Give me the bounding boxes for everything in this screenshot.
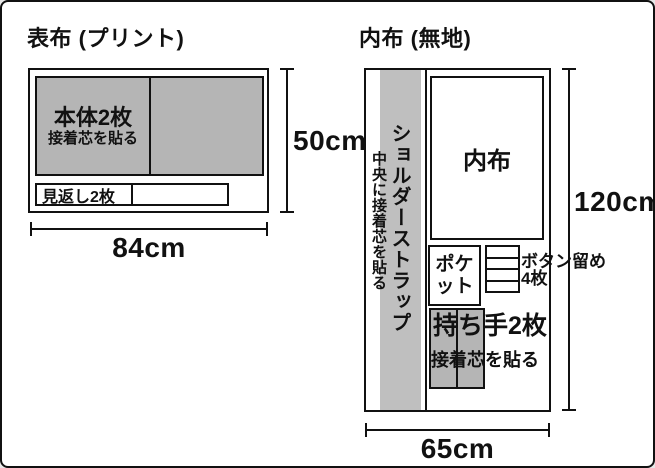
button-fastener-piece: [487, 247, 518, 257]
button-fastener-count: 4枚: [521, 270, 547, 287]
shoulder-strap-interfacing-note: 中央に接着芯を貼る: [371, 151, 386, 291]
main-body-label: 本体2枚: [54, 105, 132, 130]
strap-strip-divider-line: [425, 70, 427, 410]
lining-fabric-title: 内布 (無地): [359, 21, 471, 53]
pocket-piece: ポケット: [428, 245, 481, 306]
outer-fabric-height-label: 50cm: [293, 125, 367, 157]
lining-fabric-width-label: 65cm: [365, 433, 550, 465]
outer-fabric-title: 表布 (プリント): [27, 21, 184, 53]
button-fastener-stack: [485, 245, 520, 293]
pocket-label: ポケット: [434, 254, 475, 297]
lining-fabric-width-dim-line: [365, 429, 550, 431]
lining-piece: 内布: [430, 76, 544, 240]
handle-label: 持ち手2枚: [433, 314, 547, 339]
facing-label: 見返し2枚: [37, 183, 115, 207]
button-fastener-piece: [487, 268, 518, 280]
lining-fabric-height-label: 120cm: [574, 186, 655, 218]
lining-piece-label: 内布: [463, 141, 511, 176]
handle-interfacing-note: 接着芯を貼る: [431, 351, 539, 369]
button-fastener-piece: [487, 257, 518, 269]
outer-fabric-width-dim-line: [30, 228, 268, 230]
button-fastener-piece: [487, 280, 518, 292]
main-body-label-block: 本体2枚 接着芯を貼る: [36, 76, 150, 176]
outer-fabric-height-dim-line: [286, 68, 288, 213]
facing-piece: 見返し2枚: [35, 183, 229, 206]
button-fastener-label: ボタン留め: [521, 253, 606, 270]
main-body-interfacing-note: 接着芯を貼る: [48, 130, 138, 147]
fabric-cutting-layout-diagram: 表布 (プリント) 本体2枚 接着芯を貼る 見返し2枚 50cm 84cm 内布…: [0, 0, 655, 468]
shoulder-strap-label: ショルダーストラップ: [389, 123, 409, 333]
lining-fabric-height-dim-line: [568, 68, 570, 411]
outer-fabric-width-label: 84cm: [30, 232, 268, 264]
